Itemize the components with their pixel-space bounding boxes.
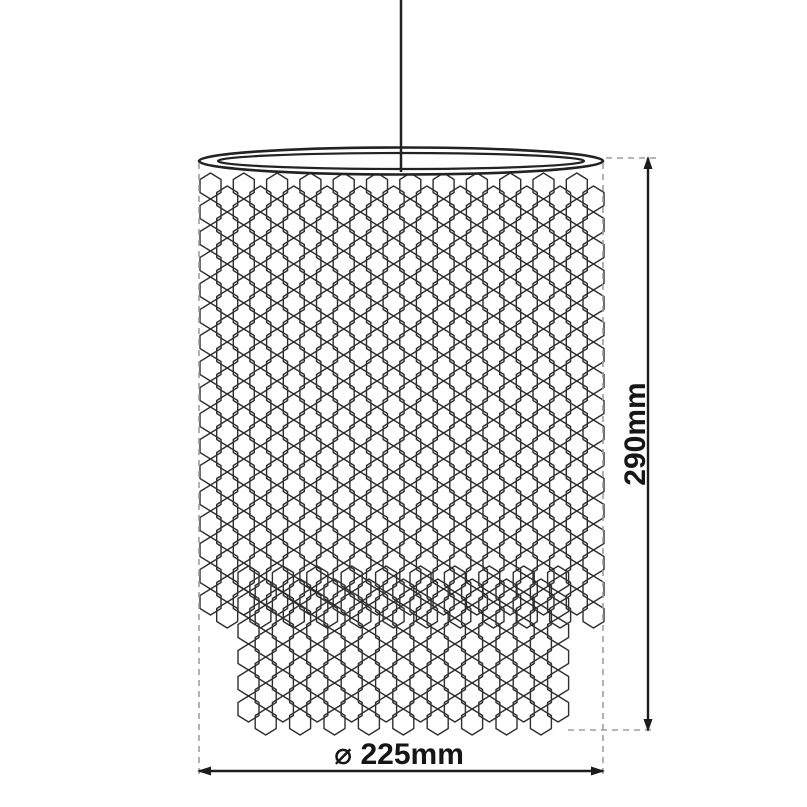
mesh-hexagon [533,381,554,407]
mesh-hexagon [416,550,437,576]
mesh-hexagon [217,394,238,420]
mesh-hexagon [466,277,487,303]
mesh-hexagon [283,186,304,212]
mesh-hexagon [250,264,271,290]
mesh-hexagon [450,368,471,394]
mesh-hexagon [200,537,221,563]
mesh-hexagon [350,212,371,238]
height-dimension-label: 290mm [619,382,652,485]
mesh-hexagon [450,550,471,576]
mesh-hexagon [383,420,404,446]
lamp-dimension-drawing: 290mm ⌀ 225mm [0,0,807,807]
mesh-hexagon [416,342,437,368]
mesh-hexagon [233,511,254,537]
mesh-hexagon [217,186,238,212]
mesh-hexagon [500,199,521,225]
mesh-hexagon [466,537,487,563]
mesh-hexagon [317,290,338,316]
mesh-hexagon [300,303,321,329]
mesh-hexagon [500,173,521,199]
mesh-hexagon [333,355,354,381]
mesh-hexagon [516,238,537,264]
mesh-hexagon [283,342,304,368]
mesh-hexagon [317,368,338,394]
mesh-hexagon [383,238,404,264]
mesh-hexagon [566,511,587,537]
mesh-hexagon [550,368,571,394]
mesh-hexagon [483,394,504,420]
mesh-hexagon [466,381,487,407]
mesh-hexagon [450,212,471,238]
mesh-hexagon [217,550,238,576]
mesh-hexagon [516,212,537,238]
mesh-hexagon [533,459,554,485]
mesh-body-tier1 [200,173,604,628]
mesh-hexagon [367,303,388,329]
mesh-hexagon [500,303,521,329]
mesh-hexagon [333,303,354,329]
mesh-hexagon [516,186,537,212]
mesh-hexagon [416,524,437,550]
mesh-hexagon [433,433,454,459]
mesh-hexagon [217,472,238,498]
mesh-hexagon [350,342,371,368]
mesh-hexagon [200,277,221,303]
mesh-hexagon [533,303,554,329]
mesh-hexagon [333,537,354,563]
mesh-hexagon [433,381,454,407]
mesh-hexagon [367,173,388,199]
mesh-hexagon [317,420,338,446]
mesh-hexagon [433,225,454,251]
mesh-hexagon [317,446,338,472]
mesh-hexagon [300,199,321,225]
mesh-hexagon [283,498,304,524]
mesh-hexagon [500,381,521,407]
mesh-hexagon [250,316,271,342]
mesh-hexagon [466,303,487,329]
mesh-hexagon [566,563,587,589]
mesh-hexagon [267,459,288,485]
mesh-hexagon [583,498,604,524]
mesh-hexagon [400,407,421,433]
mesh-hexagon [516,394,537,420]
mesh-hexagon [200,199,221,225]
mesh-hexagon [483,550,504,576]
mesh-hexagon [367,485,388,511]
mesh-hexagon [233,433,254,459]
diameter-dimension-label: ⌀ 225mm [334,738,464,771]
mesh-hexagon [317,394,338,420]
mesh-hexagon [483,238,504,264]
mesh-hexagon [283,264,304,290]
mesh-hexagon [300,407,321,433]
mesh-hexagon [250,446,271,472]
mesh-hexagon [566,329,587,355]
mesh-hexagon [300,485,321,511]
mesh-hexagon [550,290,571,316]
mesh-hexagon [267,303,288,329]
mesh-hexagon [367,381,388,407]
mesh-hexagon [250,420,271,446]
mesh-hexagon [548,696,569,722]
diagram-canvas: 290mm ⌀ 225mm [0,0,807,807]
mesh-hexagon [583,576,604,602]
mesh-hexagon [217,264,238,290]
mesh-hexagon [433,459,454,485]
mesh-hexagon [383,498,404,524]
mesh-hexagon [416,264,437,290]
mesh-hexagon [566,277,587,303]
mesh-hexagon [217,602,238,628]
mesh-hexagon [483,264,504,290]
mesh-hexagon [483,368,504,394]
mesh-hexagon [200,511,221,537]
mesh-hexagon [350,524,371,550]
mesh-hexagon [566,173,587,199]
mesh-hexagon [550,446,571,472]
mesh-hexagon [450,186,471,212]
mesh-hexagon [350,498,371,524]
mesh-hexagon [400,329,421,355]
mesh-hexagon [317,264,338,290]
mesh-hexagon [250,186,271,212]
mesh-hexagon [400,173,421,199]
mesh-hexagon [433,563,454,589]
mesh-hexagon [416,446,437,472]
mesh-hexagon [566,459,587,485]
mesh-hexagon [217,576,238,602]
mesh-hexagon [200,485,221,511]
mesh-hexagon [550,472,571,498]
mesh-hexagon [217,368,238,394]
mesh-hexagon [550,212,571,238]
mesh-hexagon [333,407,354,433]
mesh-hexagon [383,212,404,238]
mesh-hexagon [350,316,371,342]
mesh-hexagon [433,485,454,511]
mesh-hexagon [250,550,271,576]
mesh-hexagon [217,498,238,524]
mesh-hexagon [367,459,388,485]
mesh-hexagon [583,212,604,238]
mesh-hexagon [367,277,388,303]
mesh-hexagon [383,290,404,316]
mesh-hexagon [217,316,238,342]
mesh-hexagon [416,290,437,316]
mesh-hexagon [333,485,354,511]
mesh-hexagon [400,277,421,303]
mesh-hexagon [450,472,471,498]
mesh-hexagon [583,368,604,394]
mesh-hexagon [267,251,288,277]
mesh-hexagon [367,537,388,563]
mesh-hexagon [583,602,604,628]
mesh-hexagon [500,433,521,459]
mesh-hexagon [566,537,587,563]
mesh-hexagon [383,264,404,290]
mesh-hexagon [300,459,321,485]
mesh-hexagon [483,472,504,498]
mesh-hexagon [566,381,587,407]
mesh-hexagon [383,316,404,342]
mesh-hexagon [416,316,437,342]
mesh-hexagon [250,290,271,316]
mesh-hexagon [200,329,221,355]
mesh-hexagon [233,225,254,251]
mesh-hexagon [500,225,521,251]
mesh-hexagon [583,446,604,472]
mesh-hexagon [200,407,221,433]
mesh-hexagon [500,407,521,433]
mesh-hexagon [416,368,437,394]
mesh-hexagon [533,329,554,355]
mesh-hexagon [383,368,404,394]
mesh-hexagon [200,303,221,329]
mesh-hexagon [466,225,487,251]
mesh-hexagon [267,433,288,459]
mesh-hexagon [233,329,254,355]
mesh-hexagon [483,420,504,446]
mesh-hexagon [450,524,471,550]
mesh-hexagon [350,186,371,212]
mesh-hexagon [450,290,471,316]
mesh-hexagon [533,511,554,537]
mesh-hexagon [500,537,521,563]
diameter-arrow-right-icon [591,767,605,776]
mesh-hexagon [466,251,487,277]
mesh-hexagon [500,251,521,277]
mesh-hexagon [350,264,371,290]
mesh-hexagon [450,394,471,420]
mesh-hexagon [200,173,221,199]
mesh-hexagon [317,498,338,524]
mesh-hexagon [500,459,521,485]
mesh-hexagon [200,433,221,459]
mesh-hexagon [533,277,554,303]
mesh-hexagon [483,212,504,238]
mesh-hexagon [333,173,354,199]
mesh-hexagon [416,212,437,238]
mesh-hexagon [333,277,354,303]
mesh-hexagon [548,670,569,696]
mesh-hexagon [533,537,554,563]
mesh-hexagon [283,394,304,420]
mesh-hexagon [483,186,504,212]
mesh-hexagon [433,511,454,537]
mesh-hexagon [466,433,487,459]
mesh-hexagon [550,186,571,212]
mesh-hexagon [383,342,404,368]
mesh-hexagon [566,355,587,381]
mesh-hexagon [466,485,487,511]
mesh-hexagon [500,511,521,537]
mesh-hexagon [333,511,354,537]
mesh-hexagon [466,355,487,381]
mesh-hexagon [400,225,421,251]
mesh-hexagon [400,355,421,381]
mesh-hexagon [283,472,304,498]
mesh-hexagon [250,472,271,498]
mesh-hexagon [283,212,304,238]
mesh-hexagon [466,563,487,589]
mesh-hexagon [450,446,471,472]
mesh-hexagon [383,472,404,498]
mesh-hexagon [566,485,587,511]
mesh-hexagon [350,368,371,394]
mesh-hexagon [317,472,338,498]
mesh-hexagon [433,303,454,329]
mesh-hexagon [350,290,371,316]
mesh-hexagon [550,238,571,264]
mesh-hexagon [217,420,238,446]
mesh-hexagon [416,394,437,420]
mesh-hexagon [550,498,571,524]
mesh-hexagon [267,537,288,563]
mesh-hexagon [300,329,321,355]
mesh-hexagon [217,446,238,472]
mesh-hexagon [267,381,288,407]
mesh-hexagon [200,381,221,407]
mesh-hexagon [383,524,404,550]
mesh-hexagon [433,537,454,563]
mesh-hexagon [217,290,238,316]
mesh-hexagon [267,199,288,225]
mesh-hexagon [283,290,304,316]
mesh-hexagon [217,212,238,238]
mesh-hexagon [533,225,554,251]
mesh-hexagon [516,368,537,394]
mesh-hexagon [450,498,471,524]
mesh-hexagon [283,524,304,550]
mesh-hexagon [583,238,604,264]
mesh-hexagon [350,238,371,264]
mesh-hexagon [566,251,587,277]
mesh-hexagon [350,394,371,420]
mesh-hexagon [217,342,238,368]
mesh-hexagon [516,316,537,342]
mesh-hexagon [367,225,388,251]
mesh-hexagon [500,485,521,511]
mesh-hexagon [466,511,487,537]
mesh-hexagon [250,368,271,394]
mesh-hexagon [233,355,254,381]
mesh-hexagon [466,199,487,225]
mesh-hexagon [416,498,437,524]
mesh-hexagon [200,459,221,485]
mesh-hexagon [533,433,554,459]
mesh-hexagon [400,459,421,485]
mesh-hexagon [333,381,354,407]
mesh-hexagon [233,199,254,225]
mesh-hexagon [300,433,321,459]
mesh-hexagon [566,433,587,459]
diameter-arrow-left-icon [197,767,211,776]
mesh-hexagon [200,563,221,589]
mesh-hexagon [350,420,371,446]
mesh-hexagon [300,537,321,563]
mesh-hexagon [483,524,504,550]
mesh-hexagon [583,290,604,316]
mesh-hexagon [516,342,537,368]
mesh-hexagon [550,420,571,446]
mesh-hexagon [533,251,554,277]
mesh-hexagon [317,212,338,238]
mesh-hexagon [367,329,388,355]
mesh-hexagon [583,264,604,290]
mesh-hexagon [483,446,504,472]
mesh-hexagon [533,407,554,433]
mesh-hexagon [400,537,421,563]
mesh-hexagon [433,199,454,225]
mesh-hexagon [416,420,437,446]
mesh-hexagon [450,342,471,368]
mesh-hexagon [533,355,554,381]
mesh-hexagon [367,433,388,459]
mesh-hexagon [233,485,254,511]
diameter-dimension: ⌀ 225mm [197,738,605,776]
mesh-hexagon [583,394,604,420]
mesh-hexagon [333,329,354,355]
mesh-hexagon [200,251,221,277]
mesh-hexagon [333,225,354,251]
mesh-hexagon [333,433,354,459]
mesh-hexagon [317,316,338,342]
mesh-hexagon [516,524,537,550]
mesh-hexagon [400,381,421,407]
mesh-hexagon [233,251,254,277]
mesh-hexagon [550,524,571,550]
mesh-hexagon [267,173,288,199]
mesh-hexagon [416,186,437,212]
mesh-hexagon [300,225,321,251]
mesh-hexagon [516,264,537,290]
mesh-hexagon [583,550,604,576]
mesh-hexagon [367,355,388,381]
mesh-hexagon [283,446,304,472]
mesh-hexagon [267,485,288,511]
mesh-hexagon [350,472,371,498]
mesh-hexagon [548,644,569,670]
mesh-hexagon [217,238,238,264]
mesh-hexagon [566,199,587,225]
mesh-hexagon [383,446,404,472]
mesh-hexagon [233,277,254,303]
mesh-hexagon [550,264,571,290]
mesh-hexagon [267,277,288,303]
mesh-hexagon [516,290,537,316]
mesh-hexagon [233,381,254,407]
mesh-hexagon [583,472,604,498]
mesh-hexagon [300,251,321,277]
mesh-hexagon [583,316,604,342]
mesh-hexagon [200,355,221,381]
mesh-hexagon [548,618,569,644]
mesh-hexagon [283,238,304,264]
mesh-hexagon [400,511,421,537]
mesh-hexagon [516,498,537,524]
mesh-hexagon [533,485,554,511]
mesh-hexagon [466,173,487,199]
mesh-hexagon [483,290,504,316]
mesh-hexagon [516,446,537,472]
mesh-hexagon [333,199,354,225]
mesh-hexagon [583,342,604,368]
mesh-hexagon [300,355,321,381]
mesh-hexagon [233,173,254,199]
mesh-hexagon [433,355,454,381]
mesh-hexagon [250,498,271,524]
